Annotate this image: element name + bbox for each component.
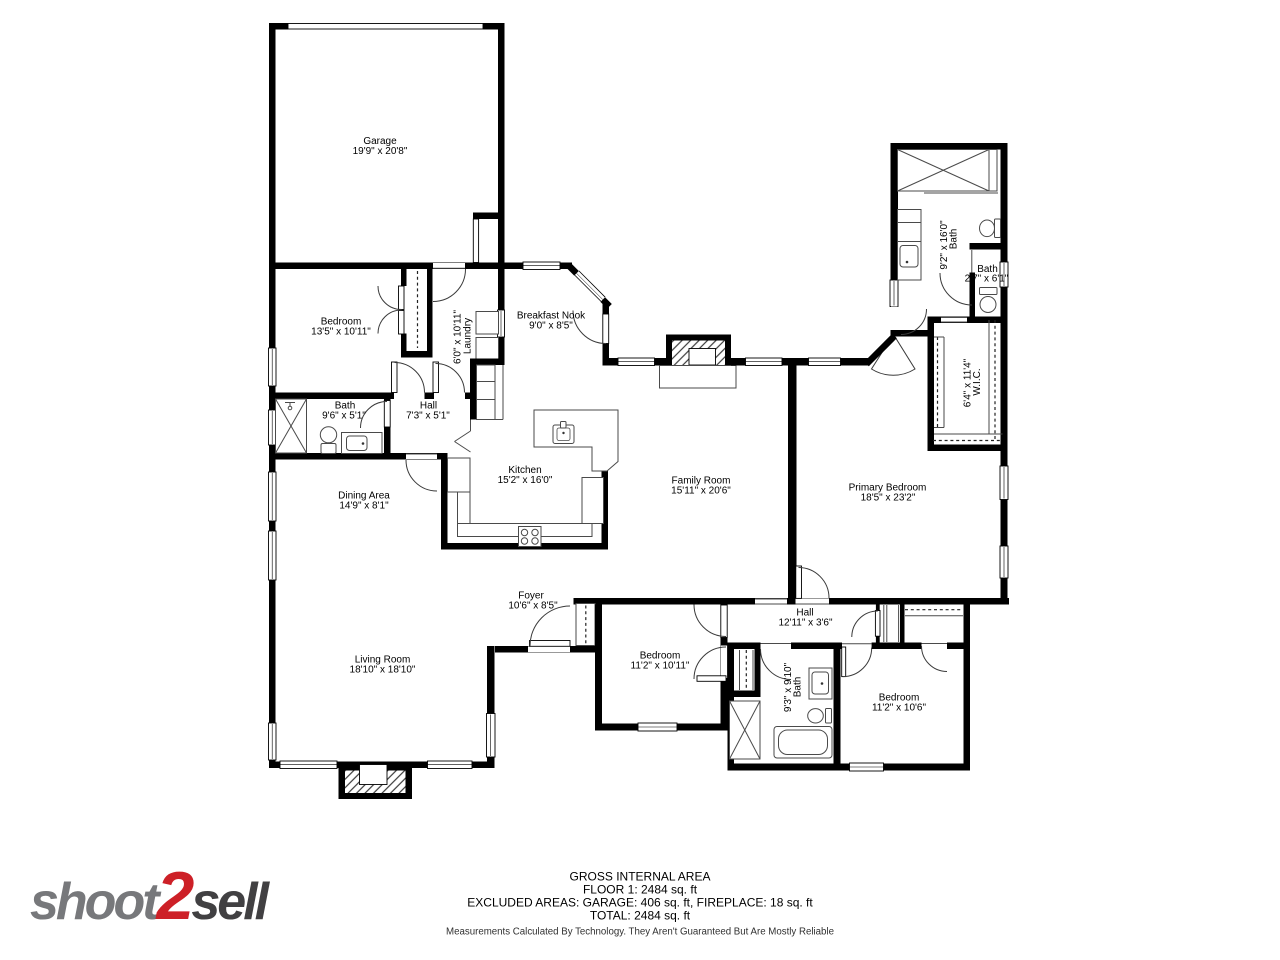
svg-text:Bath: Bath bbox=[793, 677, 804, 698]
svg-text:10'6" x 8'5": 10'6" x 8'5" bbox=[508, 601, 558, 612]
svg-text:15'11" x 20'6": 15'11" x 20'6" bbox=[671, 486, 731, 497]
svg-text:19'9" x 20'8": 19'9" x 20'8" bbox=[353, 146, 408, 157]
svg-text:12'11" x 3'6": 12'11" x 3'6" bbox=[778, 618, 833, 629]
svg-text:11'2" x 10'11": 11'2" x 10'11" bbox=[631, 661, 690, 672]
svg-text:9'3" x 9'10": 9'3" x 9'10" bbox=[783, 662, 794, 712]
svg-text:FLOOR 1: 2484 sq. ft: FLOOR 1: 2484 sq. ft bbox=[583, 883, 698, 897]
svg-text:11'2" x 10'6": 11'2" x 10'6" bbox=[872, 703, 927, 714]
svg-text:9'0" x 8'5": 9'0" x 8'5" bbox=[529, 321, 573, 332]
svg-text:EXCLUDED AREAS: GARAGE: 406 sq: EXCLUDED AREAS: GARAGE: 406 sq. ft, FIRE… bbox=[467, 896, 813, 910]
svg-text:7'3" x 5'1": 7'3" x 5'1" bbox=[406, 411, 450, 422]
svg-text:14'9" x 8'1": 14'9" x 8'1" bbox=[339, 501, 389, 512]
svg-text:13'5" x 10'11": 13'5" x 10'11" bbox=[311, 327, 371, 338]
svg-text:W.I.C.: W.I.C. bbox=[972, 368, 983, 395]
svg-text:Bath: Bath bbox=[949, 229, 960, 250]
svg-text:6'0" x 10'11": 6'0" x 10'11" bbox=[453, 310, 464, 365]
svg-text:TOTAL: 2484 sq. ft: TOTAL: 2484 sq. ft bbox=[590, 909, 691, 923]
svg-text:9'2" x 16'0": 9'2" x 16'0" bbox=[939, 220, 950, 270]
svg-text:15'2" x 16'0": 15'2" x 16'0" bbox=[498, 475, 553, 486]
svg-text:Measurements Calculated By Tec: Measurements Calculated By Technology. T… bbox=[446, 927, 834, 938]
svg-text:18'5" x 23'2": 18'5" x 23'2" bbox=[861, 493, 916, 504]
svg-text:9'6" x 5'1": 9'6" x 5'1" bbox=[322, 411, 366, 422]
svg-text:2'7" x 6'1": 2'7" x 6'1" bbox=[965, 274, 1009, 285]
svg-text:GROSS INTERNAL AREA: GROSS INTERNAL AREA bbox=[570, 870, 711, 884]
svg-text:6'4" x 11'4": 6'4" x 11'4" bbox=[963, 358, 974, 407]
svg-text:18'10" x 18'10": 18'10" x 18'10" bbox=[350, 665, 416, 676]
svg-text:Laundry: Laundry bbox=[463, 318, 474, 354]
